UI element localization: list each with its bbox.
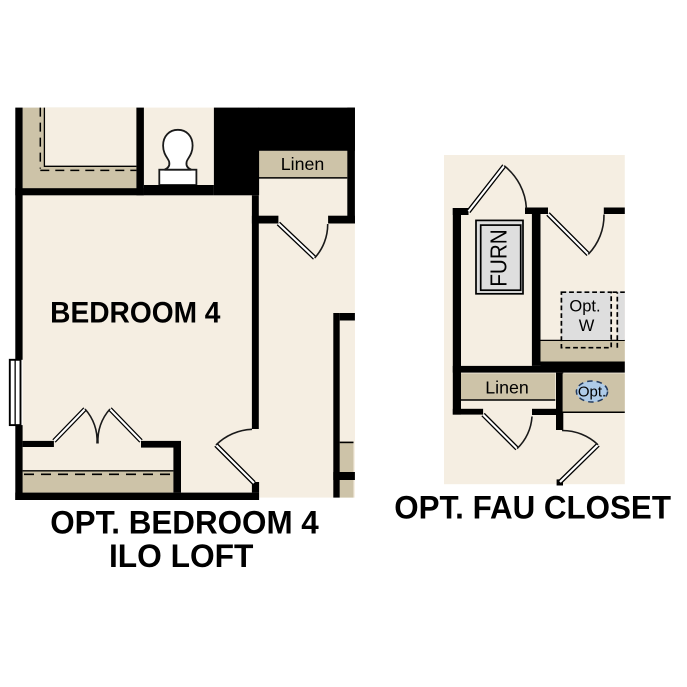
svg-text:Opt.: Opt. [569, 298, 600, 316]
svg-text:Opt.: Opt. [578, 384, 606, 401]
svg-text:Linen: Linen [281, 154, 325, 174]
svg-text:ILO LOFT: ILO LOFT [109, 538, 254, 574]
svg-text:FURN: FURN [486, 229, 512, 287]
svg-text:Linen: Linen [485, 378, 529, 398]
svg-text:OPT. FAU CLOSET: OPT. FAU CLOSET [394, 489, 671, 525]
svg-text:OPT. BEDROOM 4: OPT. BEDROOM 4 [50, 504, 319, 540]
svg-text:BEDROOM 4: BEDROOM 4 [50, 296, 221, 329]
svg-text:W: W [579, 317, 595, 335]
